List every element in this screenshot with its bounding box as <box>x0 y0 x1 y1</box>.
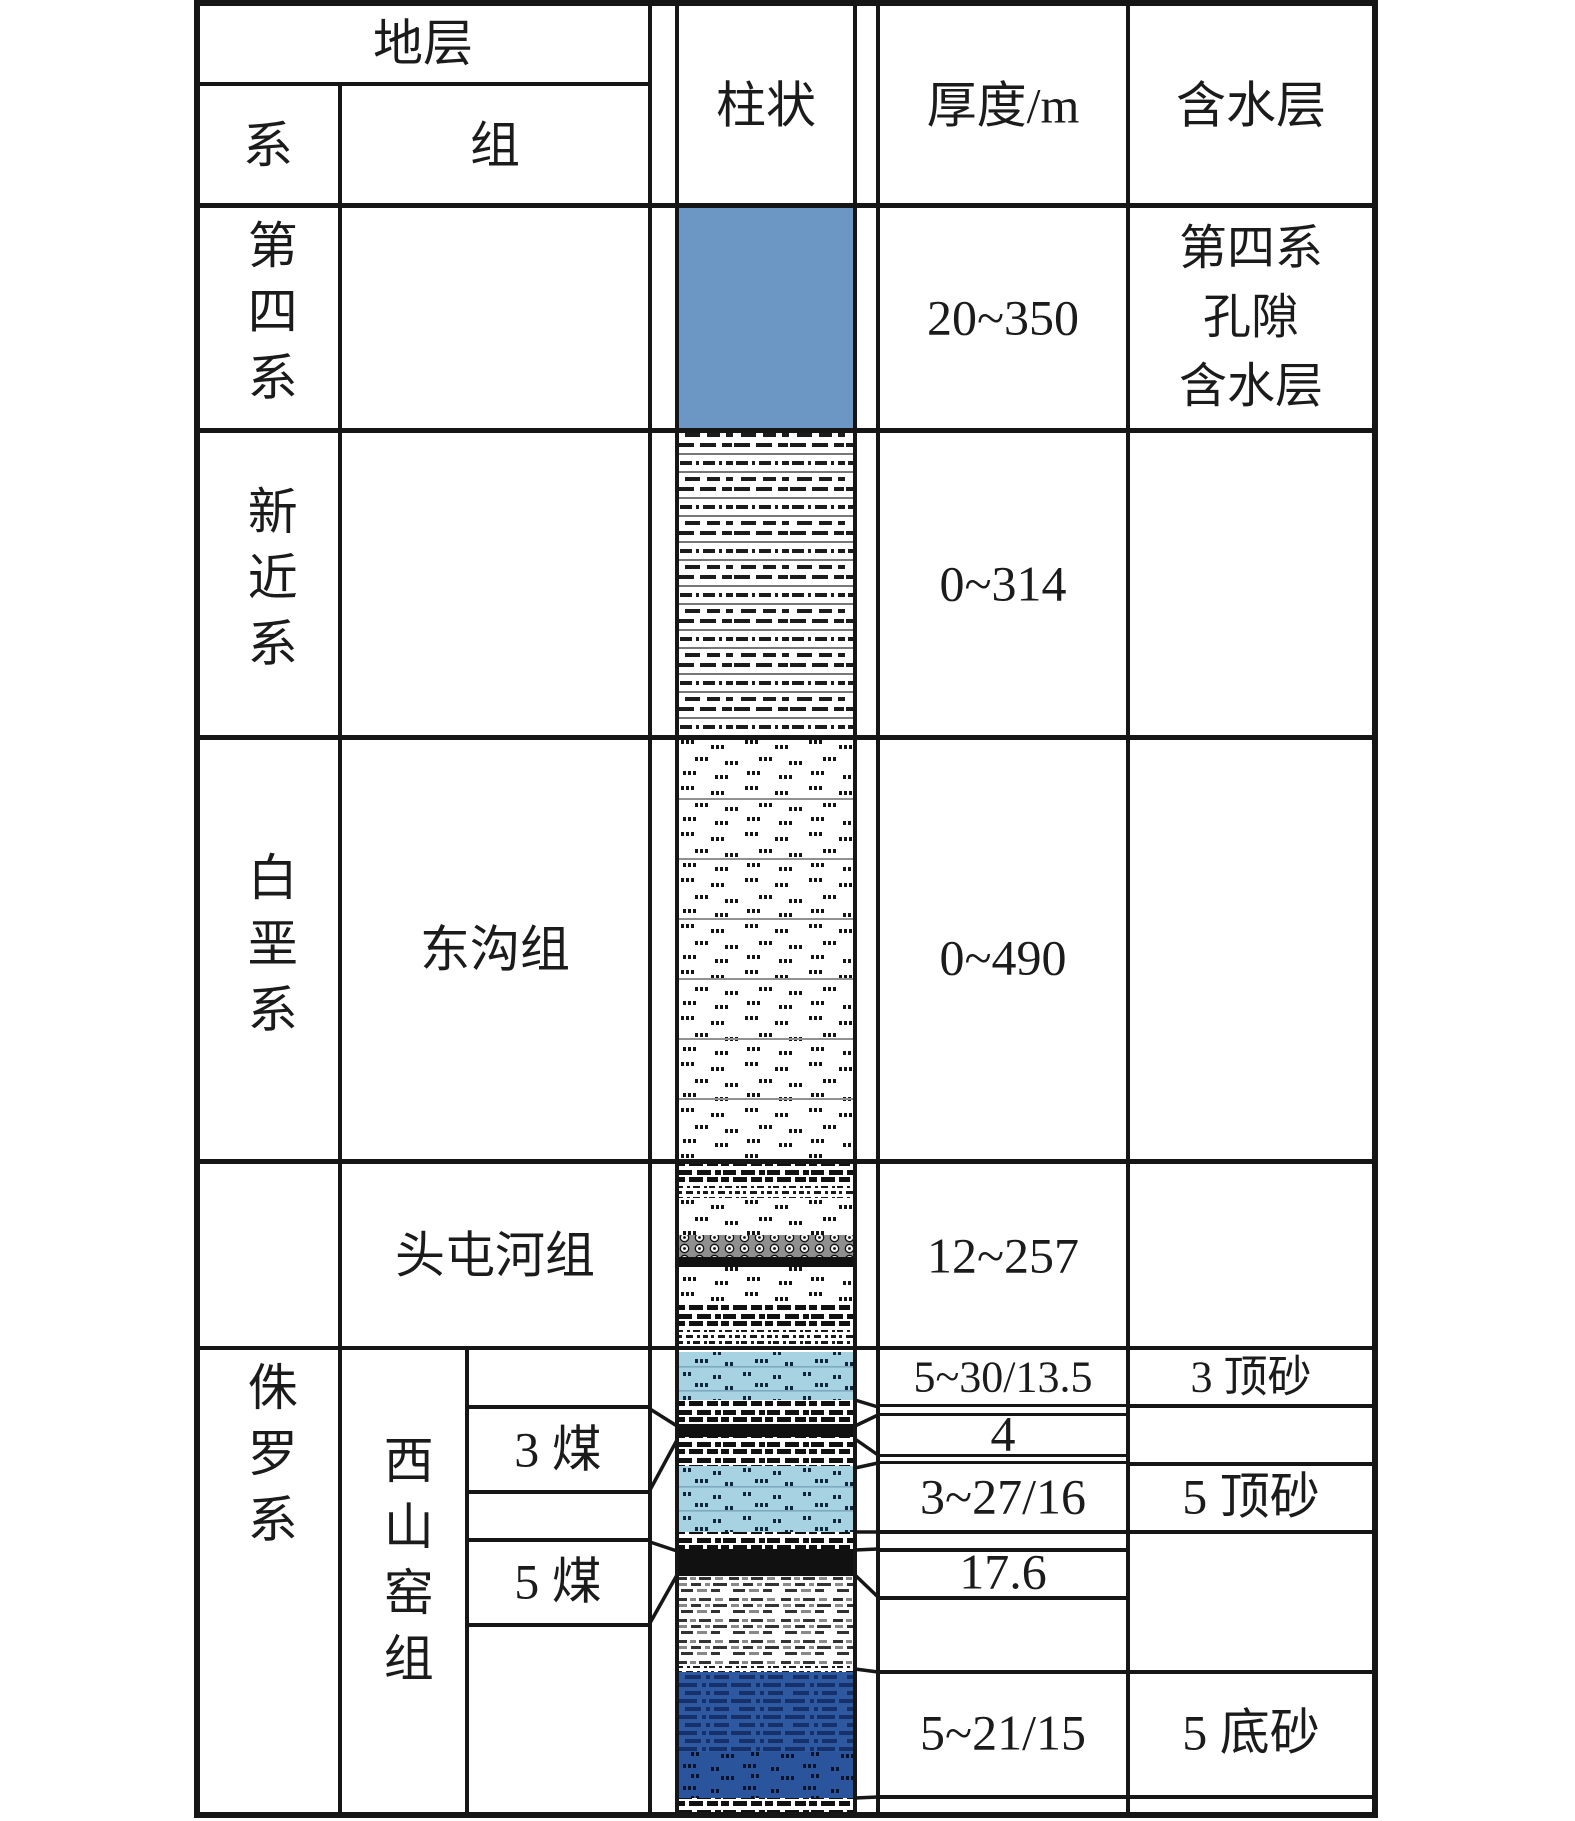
coal5-cell-top <box>467 1538 652 1542</box>
aquifer-sand5-top: 5 顶砂 <box>1182 1468 1320 1526</box>
header-aquifer: 含水层 <box>1176 77 1326 135</box>
coal3-cell-top <box>467 1405 652 1409</box>
coal3-cell-bottom <box>467 1490 652 1494</box>
thickness-neogene: 0~314 <box>939 555 1066 613</box>
header-thickness: 厚度/m <box>927 77 1080 135</box>
thickness-quaternary: 20~350 <box>927 289 1079 347</box>
header-strata: 地层 <box>373 15 473 73</box>
thk-line-1672 <box>878 1670 1128 1674</box>
header-formation: 组 <box>470 117 520 175</box>
divider-coal-label <box>465 1346 469 1816</box>
divider-gap-litho <box>675 0 679 1816</box>
thickness-sand3-top: 5~30/13.5 <box>913 1353 1092 1404</box>
aq-line-1672 <box>1128 1670 1375 1674</box>
aquifer-quaternary-line3: 含水层 <box>1179 360 1323 415</box>
thickness-sand5-top: 3~27/16 <box>920 1468 1086 1526</box>
aquifer-quaternary-line2: 孔隙 <box>1179 290 1323 345</box>
aquifer-quaternary-line1: 第四系 <box>1179 221 1323 276</box>
system-neogene: 新近系 <box>239 485 297 683</box>
thickness-coal5: 17.6 <box>959 1543 1047 1601</box>
stratigraphic-column-diagram: 地层 系 组 柱状 厚度/m 含水层 第四系 新近系 白垩系 侏罗系 东沟组 头… <box>0 0 1575 1821</box>
coal-seam-3-label: 3 煤 <box>514 1421 602 1479</box>
aquifer-sand3-top: 3 顶砂 <box>1191 1353 1312 1404</box>
formation-xishanyao: 西山窑组 <box>375 1434 433 1698</box>
thickness-coal3-interval: 4 <box>991 1405 1016 1463</box>
divider-litho-gap <box>853 0 857 1816</box>
row-line-cretaceous-jurassic <box>194 1159 1378 1164</box>
aquifer-sand5-bottom: 5 底砂 <box>1182 1704 1320 1762</box>
table-border-top <box>194 0 1378 6</box>
system-cretaceous: 白垩系 <box>239 851 297 1049</box>
divider-system-formation <box>338 84 342 1816</box>
thickness-donggou: 0~490 <box>939 929 1066 987</box>
formation-toutunhe: 头屯河组 <box>395 1227 595 1285</box>
table-border-left <box>194 0 200 1818</box>
divider-gap-thickness <box>876 0 880 1816</box>
thk-line-1797 <box>878 1795 1128 1799</box>
header-column: 柱状 <box>716 77 816 135</box>
thk-line-1532 <box>878 1530 1128 1534</box>
row-line-quaternary-neogene <box>194 428 1378 433</box>
aq-line-1464 <box>1128 1462 1375 1466</box>
system-quaternary: 第四系 <box>239 219 297 417</box>
divider-thickness-aquifer <box>1126 0 1130 1816</box>
thickness-toutunhe: 12~257 <box>927 1227 1079 1285</box>
system-jurassic: 侏罗系 <box>239 1361 297 1559</box>
coal5-cell-bottom <box>467 1623 652 1627</box>
aq-line-1532 <box>1128 1530 1375 1534</box>
coal-seam-5-label: 5 煤 <box>514 1553 602 1611</box>
aq-line-1406 <box>1128 1404 1375 1408</box>
thickness-sand5-bottom: 5~21/15 <box>920 1704 1086 1762</box>
aq-line-1797 <box>1128 1795 1375 1799</box>
header-split-line <box>197 82 652 86</box>
row-line-neogene-cretaceous <box>194 735 1378 740</box>
header-system: 系 <box>243 117 293 175</box>
divider-formation-gap <box>648 0 652 1816</box>
table-border-right <box>1372 0 1378 1818</box>
header-bottom-line <box>194 203 1378 208</box>
aquifer-quaternary: 第四系 孔隙 含水层 <box>1179 221 1323 415</box>
row-line-toutunhe-xishanyao <box>194 1346 1378 1350</box>
table-border-bottom <box>194 1812 1378 1818</box>
formation-donggou: 东沟组 <box>420 921 570 979</box>
lithology-column <box>677 206 855 1818</box>
